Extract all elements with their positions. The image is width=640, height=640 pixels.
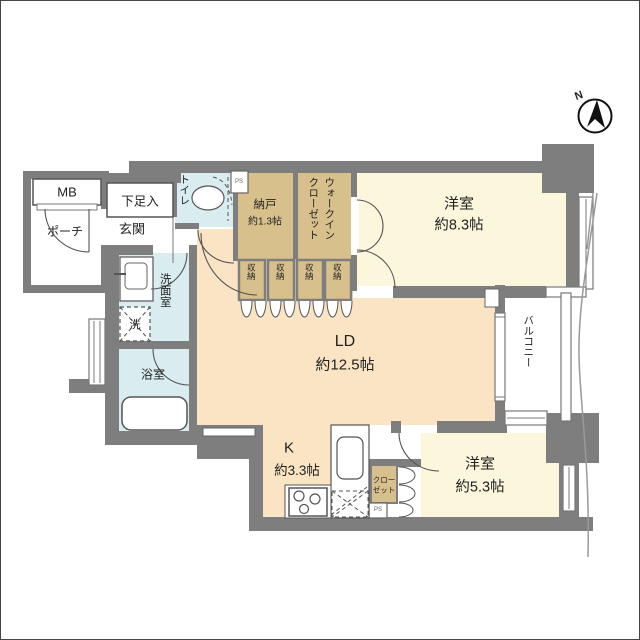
floor-plan: MB ポーチ 下足入 玄関 トイレ PS 納戸 約1.3帖 ウォークイン クロー…: [0, 0, 640, 640]
closet-label-line2: ゼット: [373, 485, 396, 496]
bedroom2-size: 約5.3帖: [455, 476, 504, 497]
wall-washroom-east: [189, 245, 197, 433]
pillar-top-right: [542, 144, 594, 193]
toilet-bowl: [192, 186, 224, 210]
living-dining-label: LD: [335, 333, 355, 351]
wall-mb-top: [23, 171, 109, 179]
washroom-label: 洗面室: [158, 273, 170, 308]
balcony-label: バルコニー: [523, 315, 534, 368]
wall-bedroom1-east: [566, 189, 579, 293]
wall-bottom: [249, 517, 593, 531]
kitchen-size: 約3.3帖: [274, 459, 320, 479]
wall-bath-bottom: [105, 431, 197, 445]
ps-bottom-label: PS: [374, 507, 382, 513]
balcony-rail-east: [561, 293, 571, 421]
shoe-cabinet-label: 下足入: [121, 191, 159, 210]
wall-mb-west: [23, 171, 31, 293]
storage-unit-4-label: 収納: [333, 263, 342, 280]
living-dining-size: 約12.5帖: [315, 354, 374, 375]
closet-bifold: [399, 467, 415, 517]
kitchen-sink: [337, 437, 363, 479]
entrance-label: 玄関: [119, 219, 145, 238]
kitchen-label: K: [284, 440, 294, 457]
toilet-label: トイレ: [179, 174, 190, 206]
walk-in-closet-label-col1: ウォークイン: [324, 177, 335, 240]
wall-top: [129, 161, 546, 173]
storage-room-label: 納戸: [254, 196, 277, 212]
storage-unit-2-label: 収納: [276, 263, 285, 280]
wall-washroom-bath-divider: [119, 341, 189, 349]
porch-label: ポーチ: [47, 223, 83, 240]
storage-room-size: 約1.3帖: [248, 213, 282, 228]
ps-top-label: PS: [235, 179, 243, 185]
balcony-corner-post: [485, 289, 499, 307]
wall-bedroom2-top-stub: [391, 421, 401, 433]
bath-label: 浴室: [141, 366, 165, 383]
floor-plan-drawing: [1, 1, 640, 640]
ld-floor-west: [197, 229, 238, 306]
compass: [579, 100, 612, 133]
bathtub: [122, 397, 187, 430]
balcony-sliding-window: [495, 313, 505, 401]
meter-box-door: [37, 204, 97, 210]
wall-bedroom2-top: [437, 421, 507, 433]
washer-label: 洗: [130, 316, 141, 332]
wic-door-opening: [351, 197, 359, 255]
pillar-bottom-right: [546, 413, 599, 463]
wall-bedroom1-south: [393, 286, 546, 298]
bedroom2-label: 洋室: [465, 453, 495, 474]
storage-unit-3-label: 収納: [305, 263, 314, 280]
storage-unit-1-label: 収納: [247, 263, 256, 280]
walk-in-closet-label-col2: クローゼット: [308, 177, 319, 240]
ld-south-window: [203, 428, 255, 436]
bedroom1-size: 約8.3帖: [434, 214, 483, 235]
wall-porch-bottom: [23, 285, 109, 293]
wall-nando-wic: [293, 173, 298, 259]
west-window: [89, 319, 105, 385]
vanity-sink: [125, 263, 147, 289]
bedroom1-label: 洋室: [444, 193, 474, 214]
wall-toilet-south: [175, 223, 199, 229]
mb-label: MB: [57, 185, 77, 200]
